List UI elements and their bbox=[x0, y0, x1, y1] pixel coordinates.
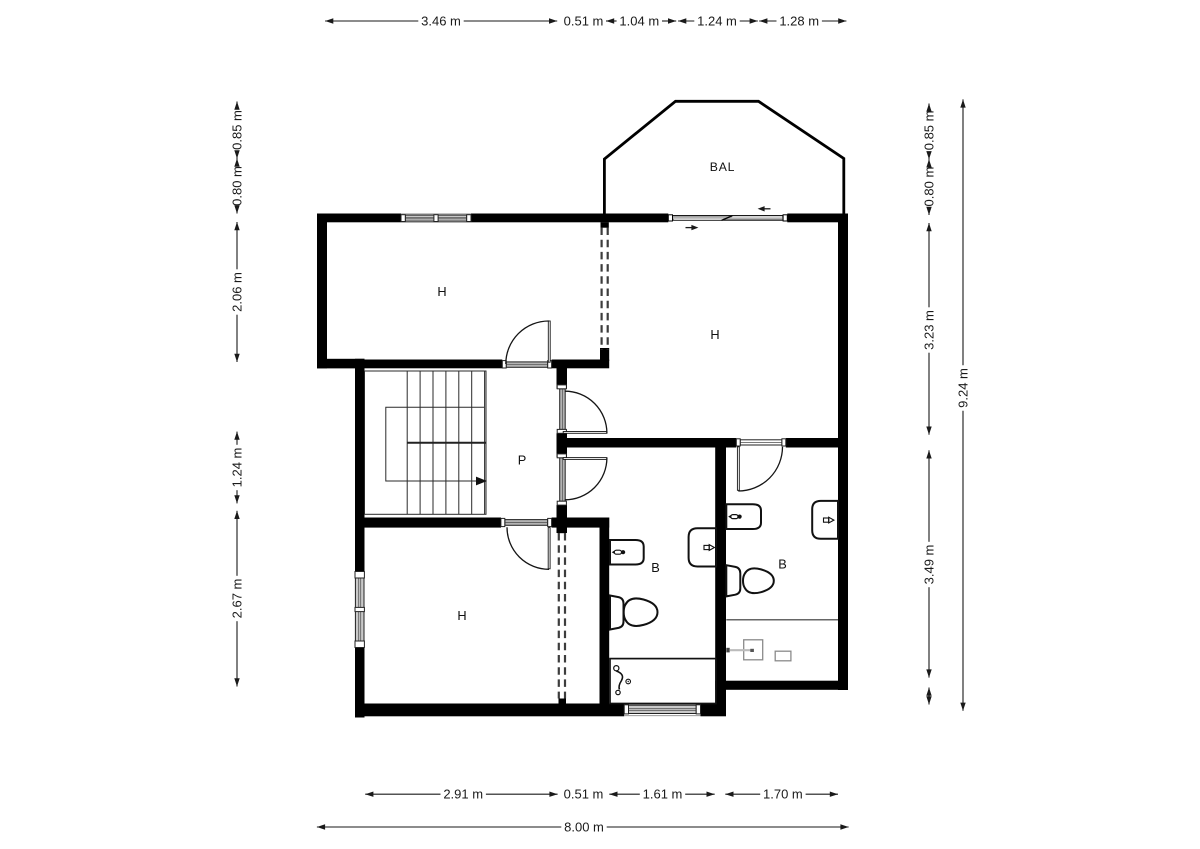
svg-text:B: B bbox=[651, 560, 660, 575]
svg-text:0.85 m: 0.85 m bbox=[229, 110, 244, 150]
svg-text:2.67 m: 2.67 m bbox=[229, 579, 244, 619]
svg-text:H: H bbox=[437, 284, 446, 299]
svg-text:2.06 m: 2.06 m bbox=[229, 272, 244, 312]
svg-text:H: H bbox=[710, 327, 719, 342]
svg-text:1.70 m: 1.70 m bbox=[763, 787, 803, 802]
svg-text:1.28 m: 1.28 m bbox=[779, 13, 819, 28]
svg-text:1.04 m: 1.04 m bbox=[619, 13, 659, 28]
svg-text:1.24 m: 1.24 m bbox=[229, 448, 244, 488]
svg-text:BAL: BAL bbox=[710, 160, 735, 174]
svg-text:0.85 m: 0.85 m bbox=[921, 111, 936, 151]
svg-text:3.49 m: 3.49 m bbox=[921, 545, 936, 585]
svg-text:3.23 m: 3.23 m bbox=[921, 310, 936, 350]
svg-text:8.00 m: 8.00 m bbox=[564, 819, 604, 834]
svg-text:0.80 m: 0.80 m bbox=[229, 166, 244, 206]
svg-text:B: B bbox=[778, 556, 787, 571]
svg-text:1.61 m: 1.61 m bbox=[643, 787, 683, 802]
svg-text:H: H bbox=[457, 608, 466, 623]
svg-text:0.51 m: 0.51 m bbox=[564, 787, 604, 802]
svg-text:0.80 m: 0.80 m bbox=[921, 167, 936, 207]
svg-text:P: P bbox=[518, 453, 527, 468]
svg-text:2.91 m: 2.91 m bbox=[443, 787, 483, 802]
svg-text:0.51 m: 0.51 m bbox=[564, 13, 604, 28]
svg-text:9.24 m: 9.24 m bbox=[955, 368, 970, 408]
svg-text:3.46 m: 3.46 m bbox=[421, 13, 461, 28]
svg-text:1.24 m: 1.24 m bbox=[697, 13, 737, 28]
